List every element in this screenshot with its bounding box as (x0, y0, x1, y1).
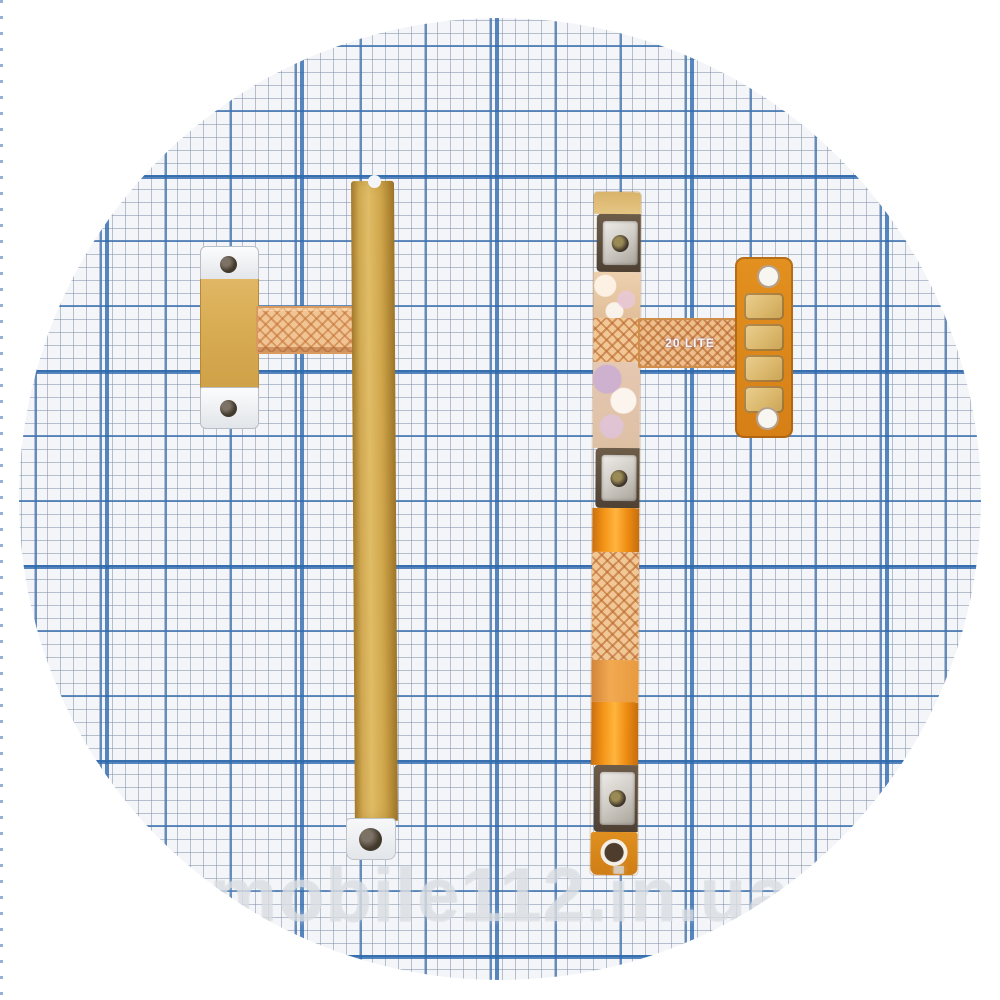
graph-paper-circle: 20 LITE mobile112.in.ua (19, 18, 981, 980)
right-strip-mesh-segment (592, 552, 640, 660)
gold-contact-pad-2 (744, 324, 784, 351)
product-photo: 20 LITE mobile112.in.ua (0, 0, 1000, 1000)
left-gold-strip (351, 181, 398, 821)
switch-metal-plate (600, 772, 635, 825)
left-copper-ribbon (256, 306, 357, 354)
tactile-switch-middle (595, 448, 641, 508)
bracket-bottom-hole (220, 400, 237, 417)
right-strip-solder-segment (593, 272, 640, 318)
watermark-text: mobile112.in.ua (210, 852, 791, 939)
switch-center-dot (610, 469, 627, 486)
flex-marking-text: 20 LITE (665, 336, 715, 350)
bracket-top-metal-tab (200, 246, 259, 282)
right-strip-orange-segment (592, 508, 639, 552)
contact-pad-bottom-hole (756, 407, 779, 430)
right-copper-ribbon: 20 LITE (638, 318, 742, 368)
right-strip-solder-segment-2 (593, 362, 640, 448)
switch-metal-plate (603, 221, 638, 265)
right-strip-top-segment (594, 192, 641, 214)
left-edge-dotted-line (0, 0, 3, 1000)
right-flex-strip (590, 192, 641, 875)
switch-center-dot (612, 234, 629, 251)
left-strip-foot-hole (359, 828, 382, 851)
switch-metal-plate (601, 455, 636, 501)
switch-center-dot (609, 790, 626, 807)
bracket-top-hole (220, 256, 237, 273)
gold-contact-pad-3 (744, 355, 784, 382)
gold-contact-pad-1 (744, 293, 784, 320)
right-strip-light-orange-segment (591, 660, 638, 702)
bracket-gold-body (200, 279, 259, 389)
contact-pad-block (735, 257, 793, 438)
bracket-bottom-metal-tab (200, 387, 259, 429)
right-strip-orange-segment-2 (591, 702, 638, 765)
contact-pad-top-hole (757, 265, 780, 288)
left-strip-top-notch (368, 175, 381, 188)
right-strip-mesh-junction (593, 318, 640, 362)
tactile-switch-top (597, 214, 641, 272)
tactile-switch-bottom (594, 765, 641, 832)
